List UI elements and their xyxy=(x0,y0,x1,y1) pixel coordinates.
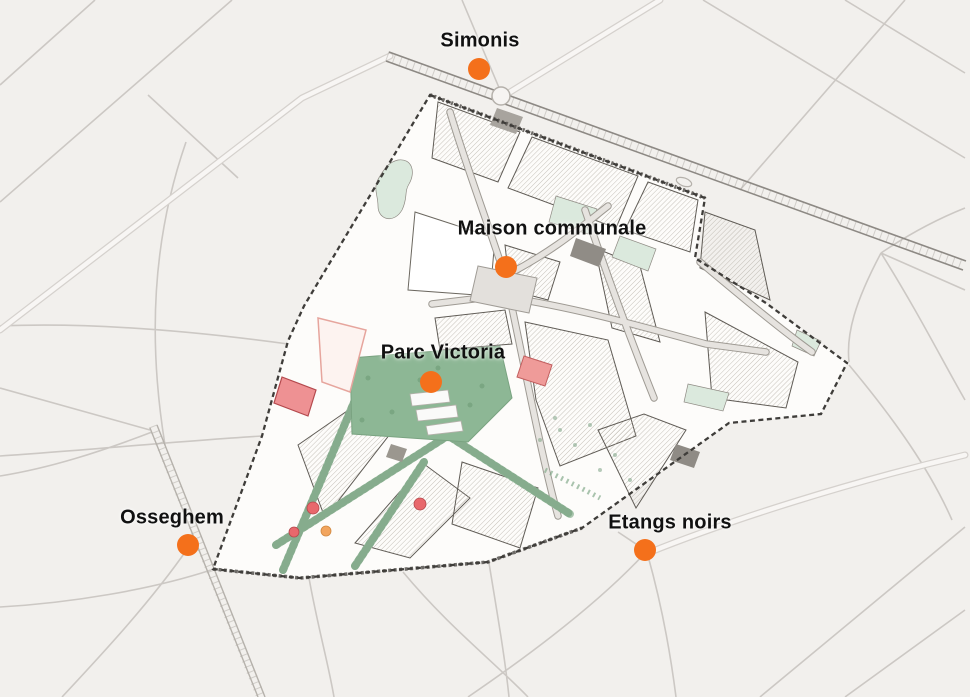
station-dot-etangs-noirs xyxy=(634,539,656,561)
station-label-maison-communale: Maison communale xyxy=(458,218,647,241)
station-label-etangs-noirs: Etangs noirs xyxy=(608,512,732,535)
station-dot-parc-victoria xyxy=(420,371,442,393)
station-dot-simonis xyxy=(468,58,490,80)
station-dot-osseghem xyxy=(177,534,199,556)
orange-building xyxy=(321,526,331,536)
station-label-simonis: Simonis xyxy=(440,30,519,53)
station-dot-maison-communale xyxy=(495,256,517,278)
map-canvas: SimonisMaison communaleParc VictoriaOsse… xyxy=(0,0,970,697)
simonis-roundabout xyxy=(492,87,510,105)
station-label-osseghem: Osseghem xyxy=(120,507,224,530)
station-label-parc-victoria: Parc Victoria xyxy=(381,342,506,365)
